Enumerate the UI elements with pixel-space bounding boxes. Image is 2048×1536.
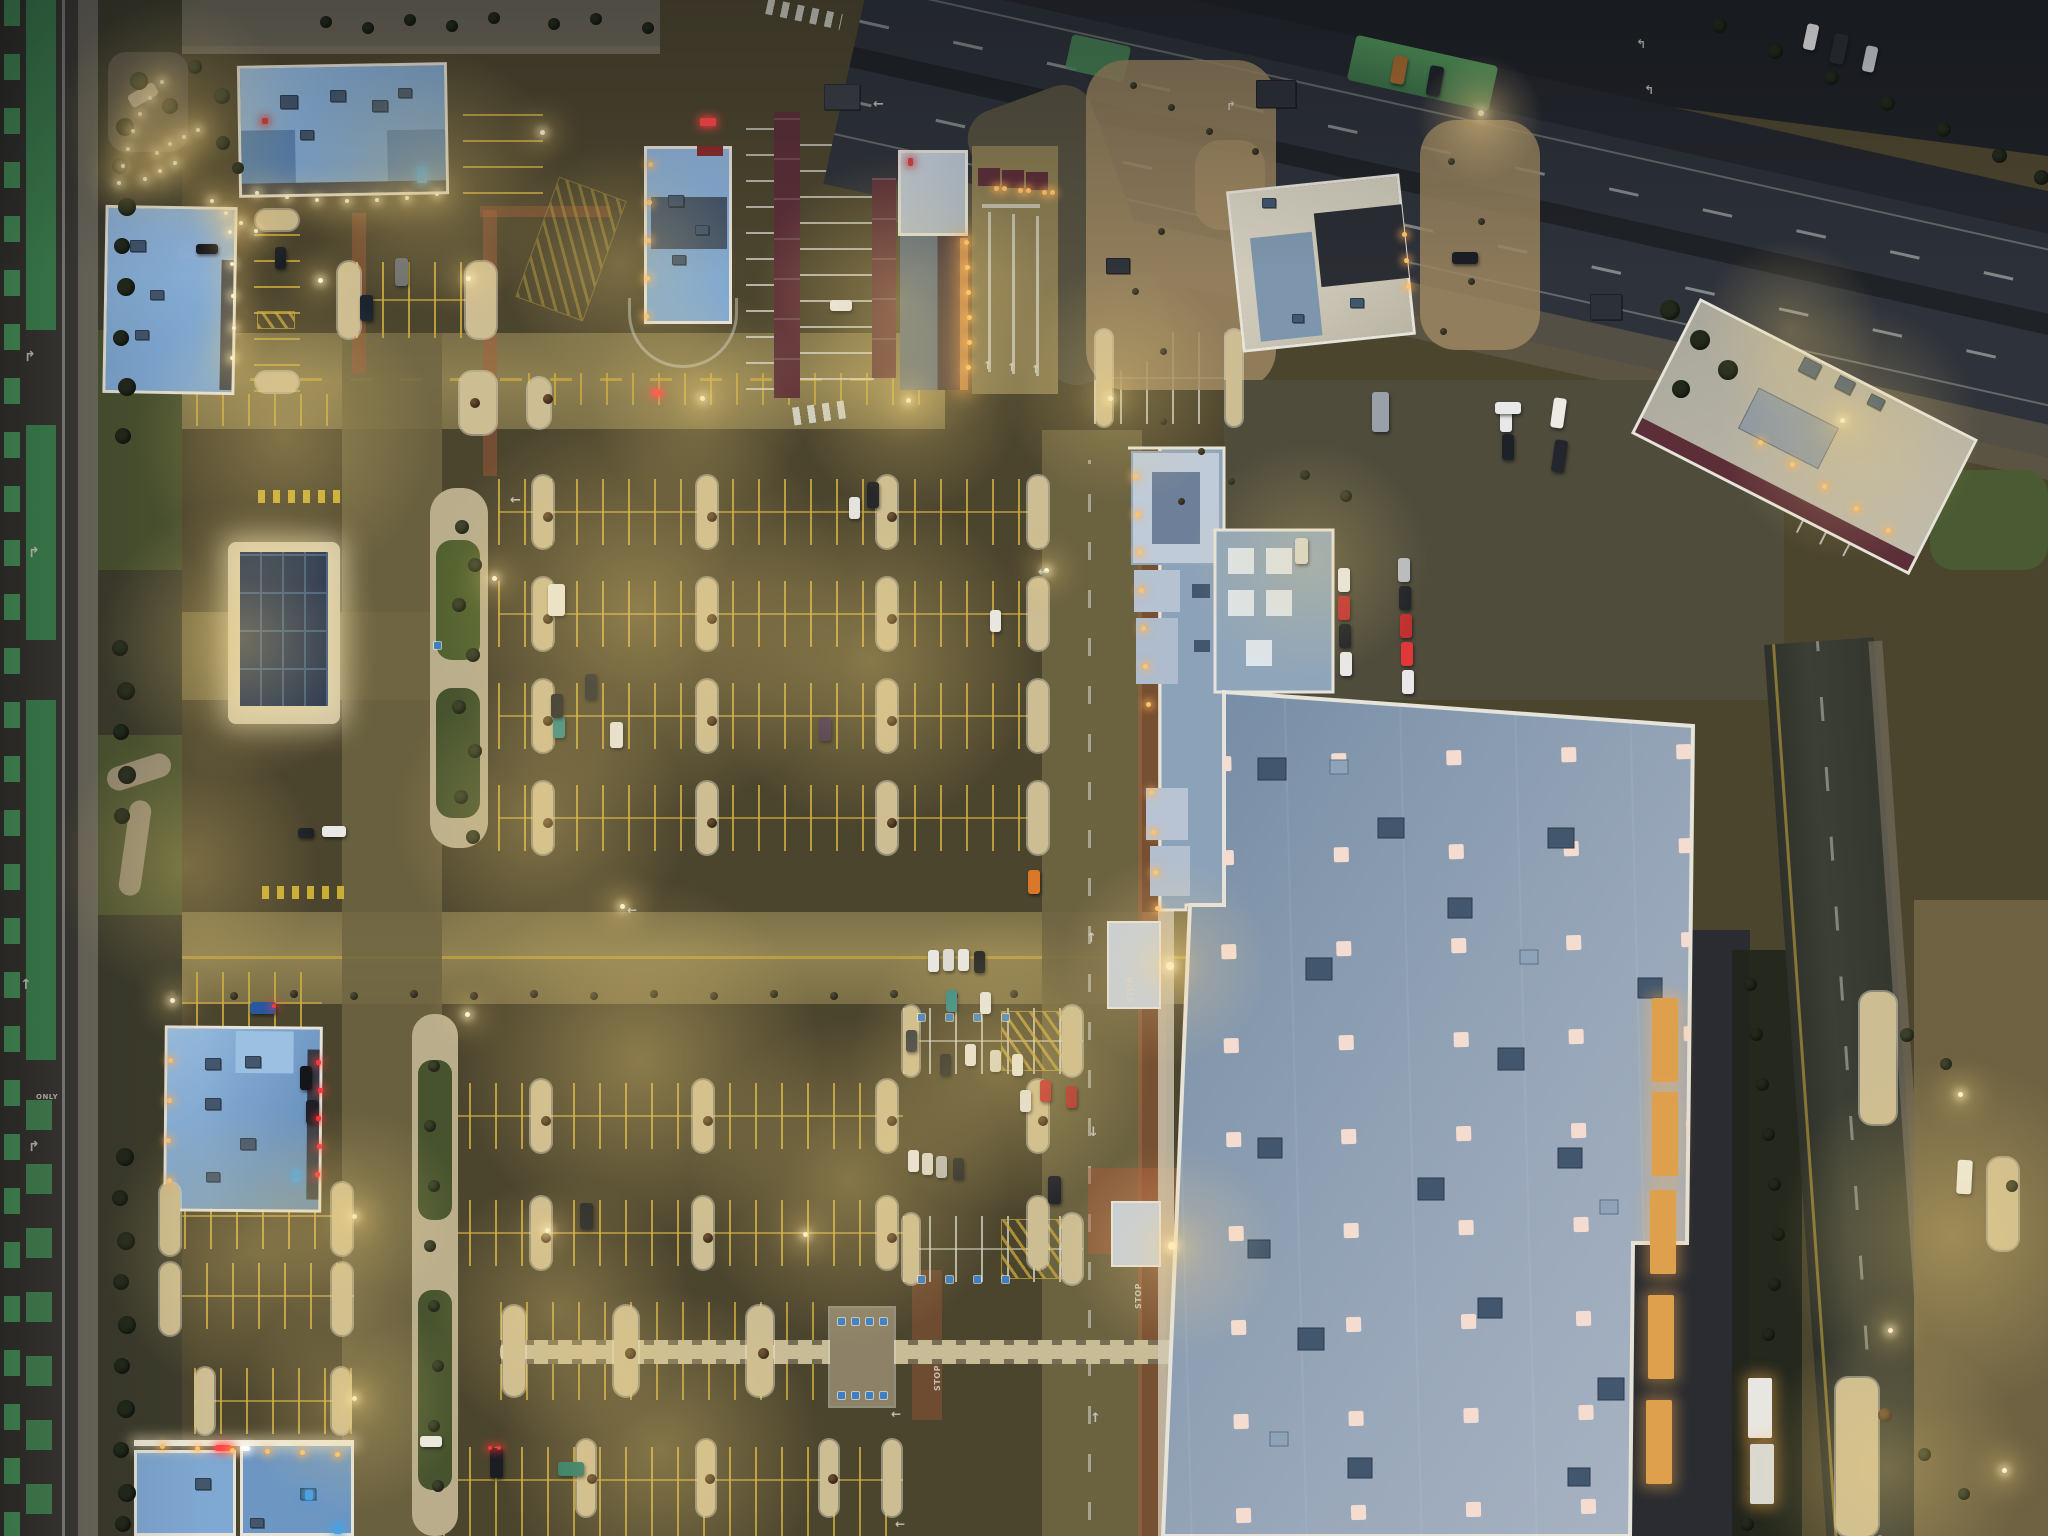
road-marking: ↰ — [1636, 38, 1647, 50]
road-marking: ← — [895, 1518, 906, 1530]
road-marking: STOP — [1135, 1283, 1143, 1309]
road-marking: ↑ — [1086, 932, 1097, 945]
road-marking: ↱ — [28, 546, 40, 560]
road-marking: ↱ — [24, 350, 36, 364]
road-marking: ← — [1038, 566, 1049, 579]
aerial-photo-shopping-center: STOPSTOPSTOPONLY↱↱↑↱↑↓↑←←←↱↰↰←←↑↑↑← — [0, 0, 2048, 1536]
road-marking: ↑ — [20, 978, 32, 992]
road-marking: ← — [873, 98, 884, 111]
road-marking: ↓ — [1088, 1126, 1099, 1139]
road-marking: ↑ — [1007, 362, 1017, 373]
road-marking: ↱ — [1226, 100, 1237, 112]
road-marking: ↰ — [1644, 84, 1655, 96]
road-marking: ↑ — [1031, 364, 1041, 375]
road-marking: ↑ — [983, 360, 993, 371]
road-marking: ONLY — [36, 1094, 58, 1101]
markings-layer: STOPSTOPSTOPONLY↱↱↑↱↑↓↑←←←↱↰↰←←↑↑↑← — [0, 0, 2048, 1536]
road-marking: ← — [510, 494, 521, 507]
road-marking: ← — [627, 904, 638, 916]
road-marking: ← — [891, 1408, 902, 1420]
road-marking: STOP — [1127, 977, 1135, 1003]
road-marking: ↱ — [28, 1140, 40, 1154]
road-marking: STOP — [934, 1365, 942, 1391]
road-marking: ↑ — [1090, 1412, 1101, 1425]
